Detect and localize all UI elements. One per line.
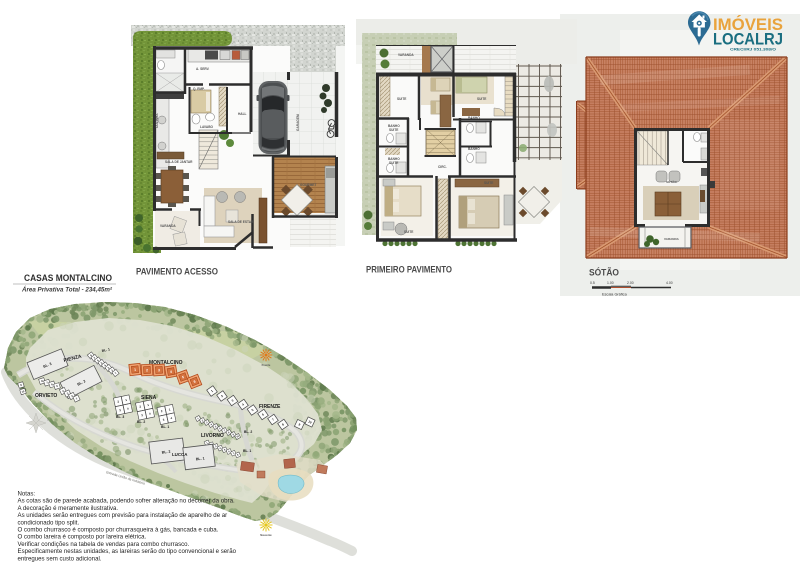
svg-text:A. SERV.: A. SERV. [196, 67, 210, 71]
svg-text:N: N [47, 418, 50, 422]
svg-text:PRIMEIRO PAVIMENTO: PRIMEIRO PAVIMENTO [366, 265, 452, 275]
svg-text:1.00: 1.00 [607, 281, 614, 285]
svg-text:Poente: Poente [262, 363, 271, 367]
svg-text:Notas:: Notas: [18, 491, 36, 498]
svg-text:SUITE: SUITE [397, 97, 406, 101]
svg-text:SÓTÃO: SÓTÃO [666, 179, 677, 184]
svg-text:GOURMET: GOURMET [300, 183, 316, 187]
svg-text:LAVABO: LAVABO [200, 125, 214, 129]
svg-text:2: 2 [146, 368, 148, 372]
svg-text:As unidades serão entregues co: As unidades serão entregues com previsão… [18, 512, 228, 519]
svg-text:BANHO: BANHO [468, 116, 480, 120]
svg-text:SALA DE ESTAR: SALA DE ESTAR [228, 220, 254, 224]
svg-text:SUITE: SUITE [404, 230, 413, 234]
svg-text:Verificar condições na tabela: Verificar condições na tabela de vendas … [18, 541, 190, 548]
svg-text:Nascente: Nascente [260, 533, 272, 537]
svg-text:PAVIMENTO ACESSO: PAVIMENTO ACESSO [136, 267, 218, 277]
svg-text:GARAGEM: GARAGEM [296, 114, 300, 131]
svg-text:SUITE: SUITE [484, 181, 493, 185]
svg-text:Escala Gráfica: Escala Gráfica [602, 293, 628, 297]
svg-text:entregues sem custo adicional.: entregues sem custo adicional. [18, 555, 102, 562]
svg-text:As cotas são de parede acabada: As cotas são de parede acabada, podendo … [18, 498, 235, 505]
svg-text:Área Privativa Total - 234,45m: Área Privativa Total - 234,45m² [21, 285, 113, 294]
svg-text:CRECI/RJ 051.308/O: CRECI/RJ 051.308/O [730, 47, 776, 52]
svg-text:CIRC.: CIRC. [438, 165, 447, 169]
svg-text:BANHO: BANHO [468, 147, 480, 151]
svg-text:BL. 2: BL. 2 [244, 430, 252, 434]
svg-text:COZINHA: COZINHA [155, 113, 159, 128]
svg-text:VARANDA: VARANDA [398, 53, 414, 57]
svg-text:BL. 1: BL. 1 [243, 449, 251, 453]
svg-text:SUITE: SUITE [389, 161, 398, 165]
svg-text:HALL: HALL [238, 112, 247, 116]
svg-text:2.00: 2.00 [627, 281, 634, 285]
svg-text:VARANDA: VARANDA [160, 224, 176, 228]
svg-text:LIVORNO: LIVORNO [201, 433, 224, 439]
svg-text:Especificamente nestas unidade: Especificamente nestas unidades, as lare… [18, 548, 237, 555]
svg-text:CASAS MONTALCINO: CASAS MONTALCINO [24, 273, 112, 284]
svg-text:O combo lareira é composto por: O combo lareira é composto por lareira e… [18, 534, 147, 541]
svg-text:SÓTÃO: SÓTÃO [589, 267, 619, 279]
svg-text:3: 3 [158, 368, 160, 372]
svg-text:SALA DE JANTAR: SALA DE JANTAR [165, 160, 193, 164]
svg-text:VARANDA: VARANDA [664, 237, 680, 241]
svg-text:BL. 2: BL. 2 [137, 420, 145, 424]
svg-text:A decoração é meramente ilustr: A decoração é meramente ilustrativa. [18, 505, 119, 512]
svg-text:condicionado tipo split.: condicionado tipo split. [18, 519, 80, 526]
svg-text:SUITE: SUITE [477, 97, 486, 101]
svg-text:0.5: 0.5 [590, 281, 595, 285]
svg-text:LUCCA: LUCCA [172, 452, 188, 457]
svg-text:Q. EMP.: Q. EMP. [193, 87, 205, 91]
svg-text:BL. 1: BL. 1 [161, 425, 169, 429]
svg-text:4.00: 4.00 [666, 281, 673, 285]
svg-text:BL. 3: BL. 3 [116, 415, 124, 419]
svg-text:SUITE: SUITE [389, 128, 398, 132]
svg-text:ORVIETO: ORVIETO [35, 393, 57, 399]
svg-text:FIRENZE: FIRENZE [259, 404, 281, 410]
svg-text:O combo churrasco é composto p: O combo churrasco é composto por churras… [18, 527, 219, 534]
